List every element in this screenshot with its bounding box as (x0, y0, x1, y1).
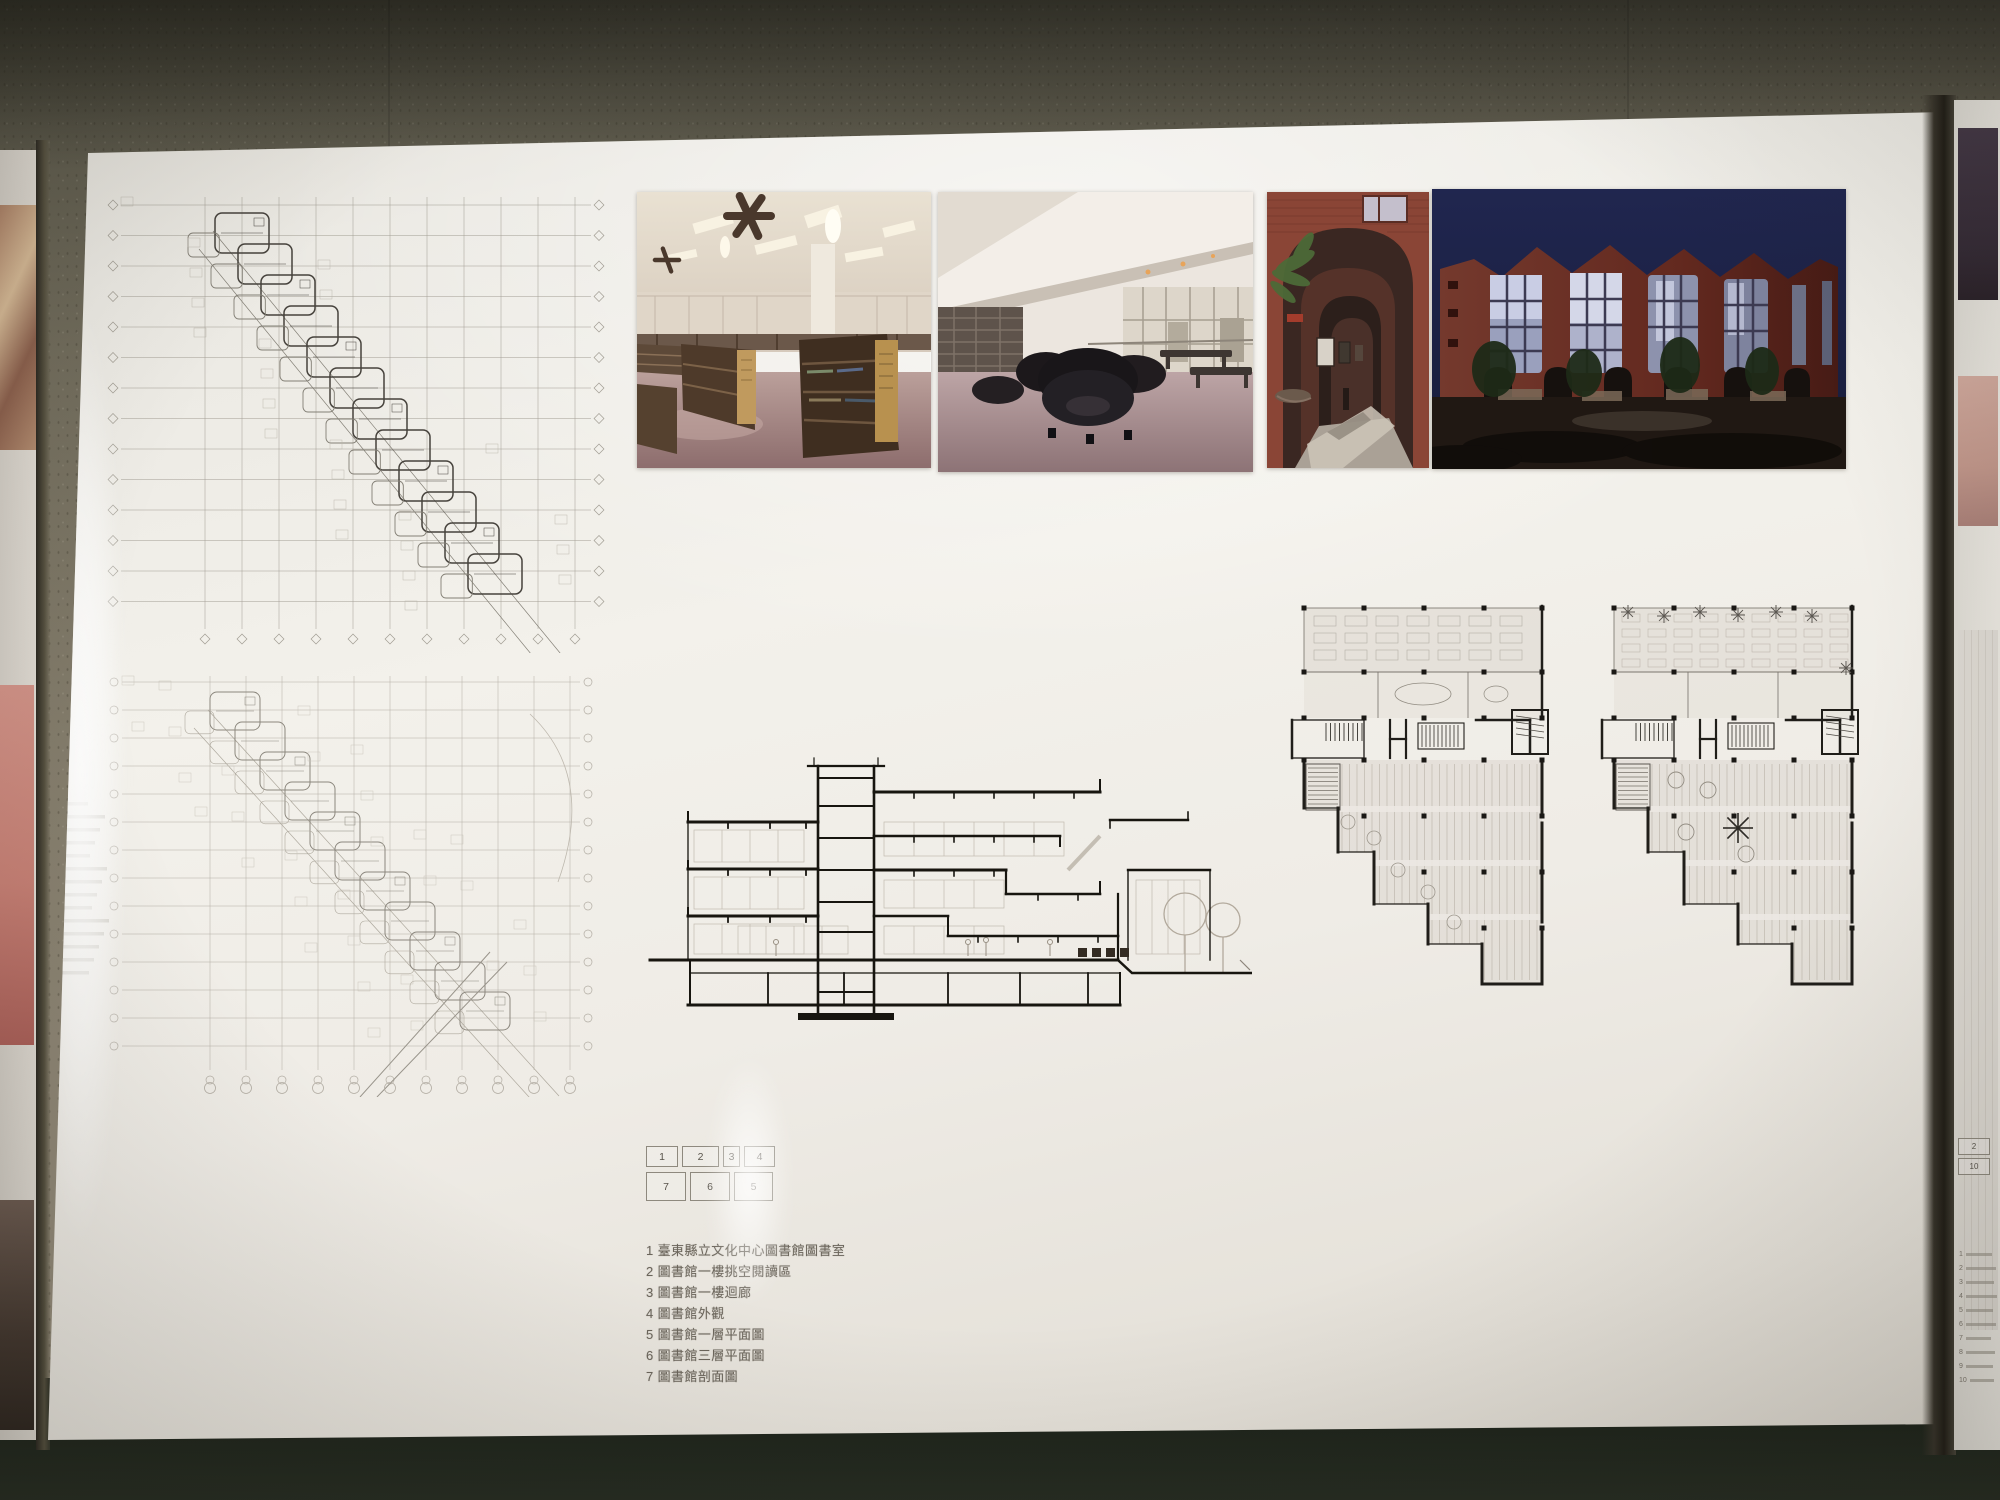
diagonal-floor-plan-lower (60, 652, 625, 1097)
right-caption-line: 10 (1959, 1373, 1999, 1387)
right-board-key-map: 2 10 (1954, 1135, 1990, 1175)
right-board-photo-pink (1958, 376, 1998, 526)
adjacent-board-right: 2 10 1 2 3 4 5 6 7 8 9 10 (1954, 100, 2000, 1450)
diagonal-floor-plan-upper (95, 183, 617, 653)
right-key-box: 10 (1958, 1158, 1990, 1175)
left-board-photo-dark (0, 1200, 34, 1430)
caption-line: 7 圖書館剖面圖 (646, 1366, 845, 1387)
wall-joint-line (388, 0, 390, 160)
building-section-drawing (648, 730, 1252, 1022)
light-reflection-bottom (684, 1000, 814, 1360)
photo-library-reading-room (637, 192, 931, 468)
key-map-box-7: 7 (646, 1172, 686, 1201)
right-caption-line: 8 (1959, 1345, 1999, 1359)
right-caption-line: 2 (1959, 1261, 1999, 1275)
section-trees (1164, 893, 1240, 973)
board-seam-right (1922, 95, 1956, 1455)
right-board-drawing-strip (1958, 630, 1998, 1330)
photo-library-exterior-night (1432, 189, 1846, 469)
right-caption-line: 5 (1959, 1303, 1999, 1317)
stepped-floor-plan-left (1278, 592, 1590, 1012)
photo-brick-arcade (1267, 192, 1429, 468)
stepped-floor-plan-right (1588, 592, 1900, 1012)
right-caption-line: 7 (1959, 1331, 1999, 1345)
photo-double-height-reading-area (938, 192, 1253, 472)
right-board-photo-dark (1958, 128, 1998, 300)
right-caption-line: 9 (1959, 1359, 1999, 1373)
exhibition-board: 1 2 3 4 7 6 5 1 臺東縣立文化中心圖書館圖書室 2 圖書館一樓挑空… (0, 0, 2000, 1500)
left-board-photo-pink-building (0, 685, 34, 1045)
right-caption-line: 6 (1959, 1317, 1999, 1331)
right-caption-line: 1 (1959, 1247, 1999, 1261)
key-map-box-1: 1 (646, 1146, 678, 1167)
exhibition-photo: 1 2 3 4 7 6 5 1 臺東縣立文化中心圖書館圖書室 2 圖書館一樓挑空… (0, 0, 2000, 1500)
adjacent-board-left (0, 150, 38, 1440)
right-board-caption-list: 1 2 3 4 5 6 7 8 9 10 (1959, 1247, 1999, 1387)
left-board-photo-roof (0, 205, 36, 450)
right-key-box: 2 (1958, 1138, 1990, 1155)
board-seam-left (36, 140, 50, 1450)
right-caption-line: 3 (1959, 1275, 1999, 1289)
wall-joint-line (1627, 0, 1629, 125)
right-caption-line: 4 (1959, 1289, 1999, 1303)
